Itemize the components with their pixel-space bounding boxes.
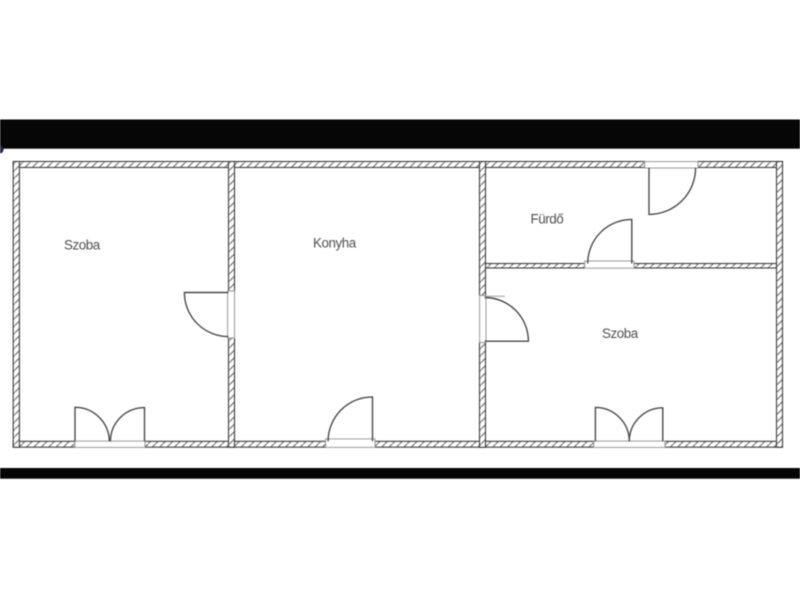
svg-text:Szoba: Szoba: [602, 326, 639, 341]
svg-text:Szoba: Szoba: [64, 238, 101, 253]
svg-text:Konyha: Konyha: [313, 236, 357, 251]
svg-text:Fürdő: Fürdő: [531, 211, 564, 226]
